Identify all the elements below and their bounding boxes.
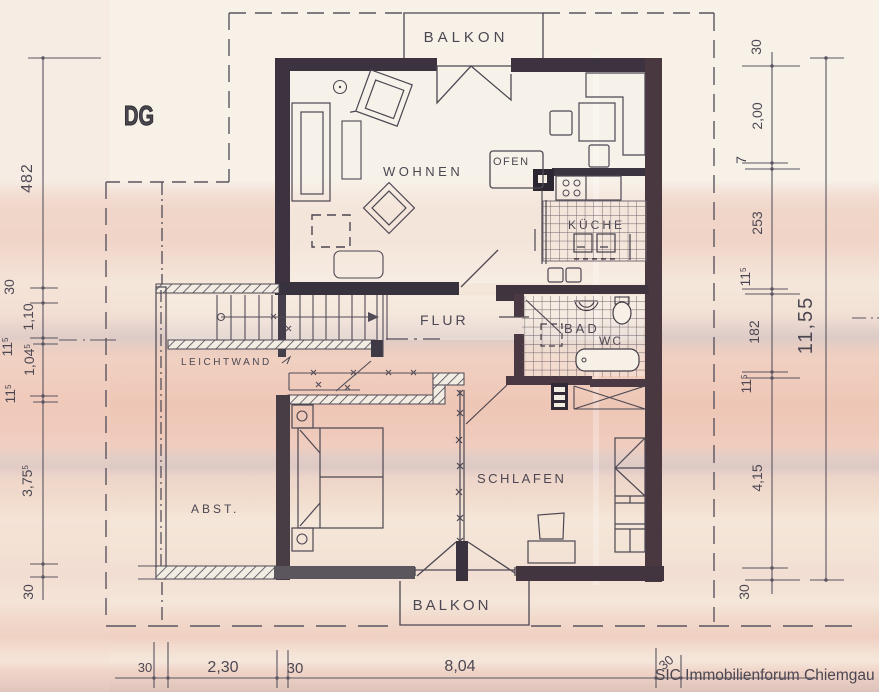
svg-text:482: 482 xyxy=(19,163,36,193)
svg-text:8,04: 8,04 xyxy=(444,658,475,675)
svg-text:SCHLAFEN: SCHLAFEN xyxy=(477,471,566,486)
svg-text:2,30: 2,30 xyxy=(207,659,238,676)
svg-text:253: 253 xyxy=(749,211,765,235)
svg-text:1,10: 1,10 xyxy=(20,303,36,330)
svg-text:30: 30 xyxy=(20,584,36,600)
svg-text:30: 30 xyxy=(736,584,752,600)
svg-text:30: 30 xyxy=(748,39,764,55)
svg-text:30: 30 xyxy=(138,660,152,675)
svg-text:ABST.: ABST. xyxy=(191,502,239,516)
svg-text:WOHNEN: WOHNEN xyxy=(383,164,463,179)
svg-text:7: 7 xyxy=(733,156,749,164)
svg-text:BALKON: BALKON xyxy=(413,597,492,614)
svg-text:SIC Immobilienforum Chiemgau: SIC Immobilienforum Chiemgau xyxy=(655,667,875,684)
svg-text:30: 30 xyxy=(287,660,304,677)
svg-text:11,55: 11,55 xyxy=(795,296,817,355)
svg-text:4,15: 4,15 xyxy=(749,464,765,491)
svg-text:BALKON: BALKON xyxy=(424,29,509,46)
svg-text:2,00: 2,00 xyxy=(749,102,765,129)
svg-text:FLUR: FLUR xyxy=(420,312,469,328)
svg-text:30: 30 xyxy=(1,279,17,295)
svg-text:182: 182 xyxy=(746,320,762,344)
svg-text:OFEN: OFEN xyxy=(493,156,530,168)
svg-text:LEICHTWAND: LEICHTWAND xyxy=(181,357,272,368)
svg-text:DG: DG xyxy=(124,100,154,131)
